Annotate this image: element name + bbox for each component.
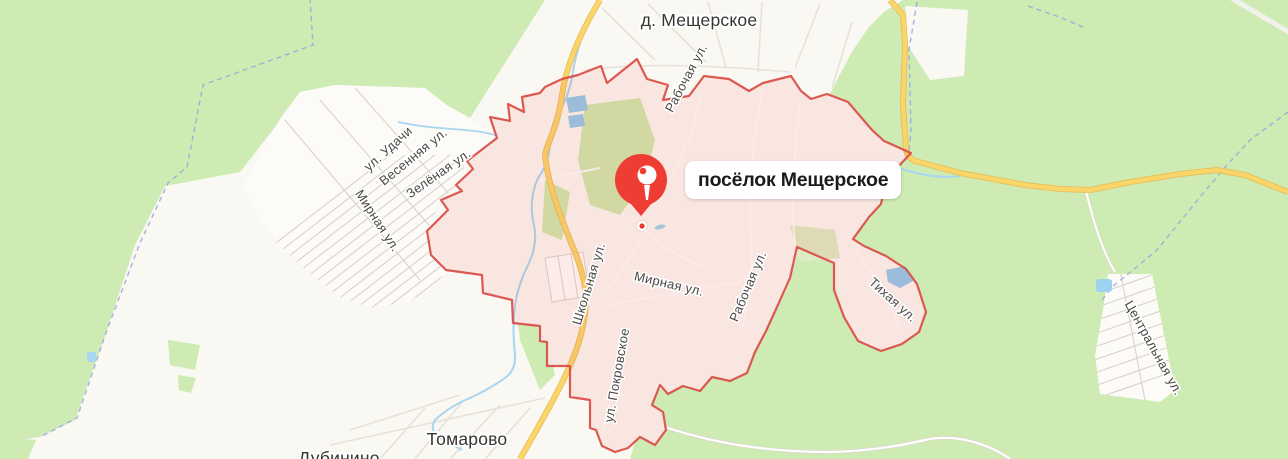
location-dot: [637, 221, 647, 231]
map-canvas[interactable]: Рабочая ул. ул. Удачи Весенняя ул. Зелён…: [0, 0, 1288, 459]
place-label-village-top: д. Мещерское: [641, 10, 758, 30]
map-viewport[interactable]: Рабочая ул. ул. Удачи Весенняя ул. Зелён…: [0, 0, 1288, 459]
selected-place-label[interactable]: посёлок Мещерское: [685, 161, 901, 199]
place-label-tomarovo: Томарово: [427, 429, 508, 449]
place-label-dubinino: Дубинино: [298, 448, 379, 459]
selected-place-label-text: посёлок Мещерское: [698, 169, 888, 192]
